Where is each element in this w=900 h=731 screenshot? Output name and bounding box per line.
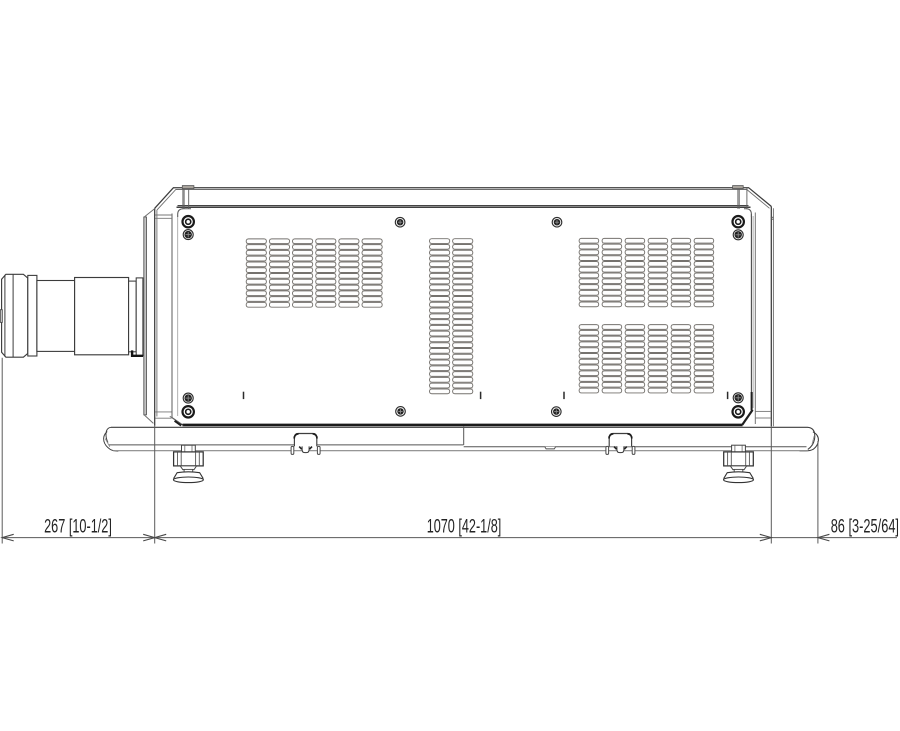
svg-text:1070 [42-1/8]: 1070 [42-1/8] [427, 516, 502, 537]
svg-text:267 [10-1/2]: 267 [10-1/2] [44, 516, 112, 537]
svg-text:86 [3-25/64]: 86 [3-25/64] [831, 516, 899, 537]
